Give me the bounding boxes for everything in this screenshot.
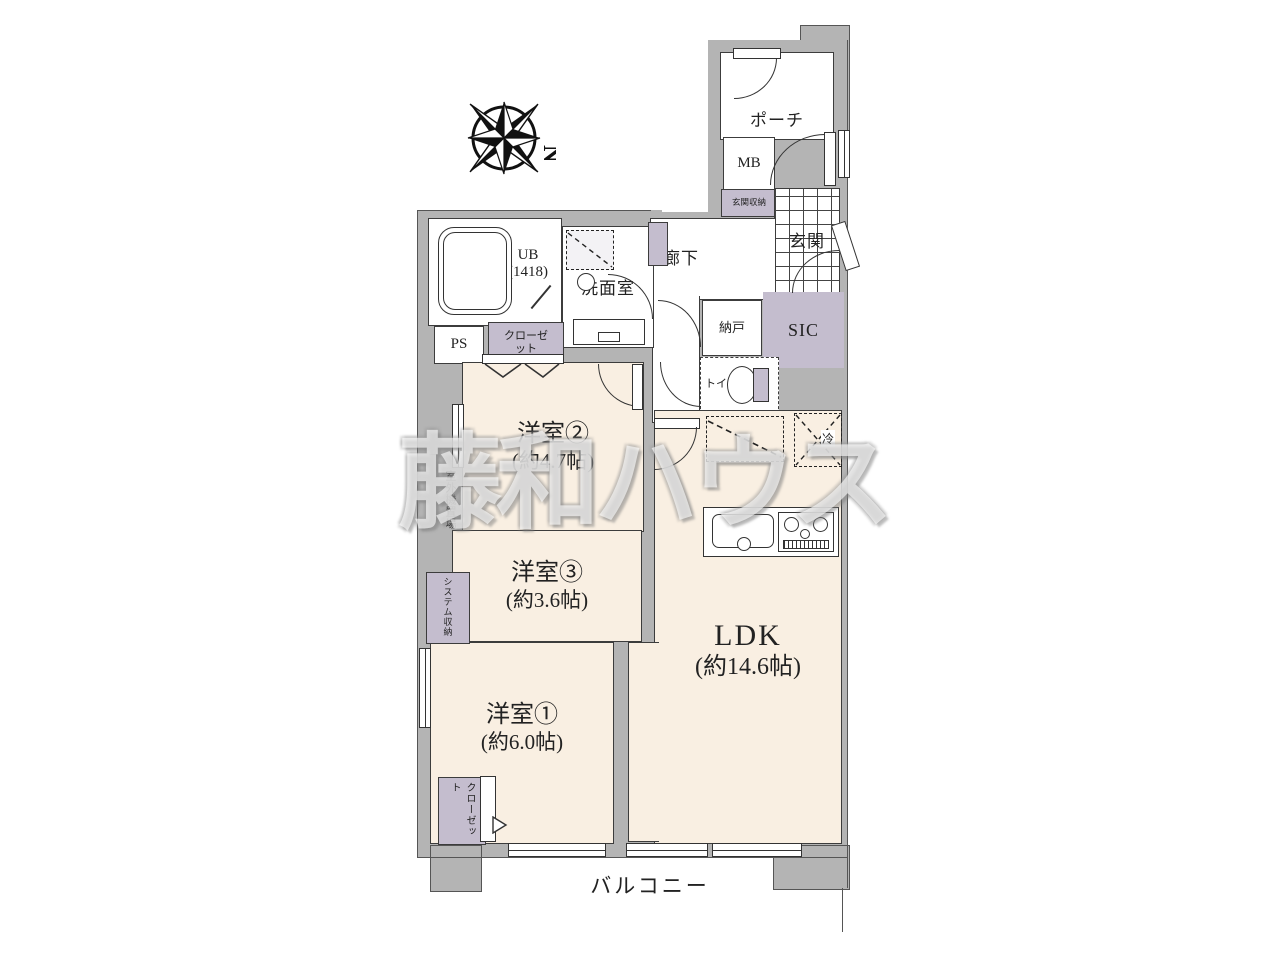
kitchen-sink xyxy=(712,514,774,548)
ldk-label: LDK (約14.6帖) xyxy=(655,619,841,681)
refrigerator-label: 冷 xyxy=(821,430,835,447)
bathtub-inner xyxy=(443,232,507,310)
outdoor-unit-space-label: 室外機置場 xyxy=(442,470,458,570)
entrance-storage-label: 玄関収納 xyxy=(732,198,766,208)
balcony-window-3 xyxy=(712,843,802,857)
balcony-window-2 xyxy=(626,843,708,857)
balcony-window-1 xyxy=(508,843,606,857)
room-storage: 納戸 xyxy=(702,300,762,356)
washer-space xyxy=(566,230,614,270)
western-1-door-arrow-icon xyxy=(492,816,508,834)
room-ldk-extension xyxy=(628,642,659,842)
western-room-2-label: 洋室② (約4.7帖) xyxy=(512,421,594,473)
toilet-tank xyxy=(753,368,769,402)
vanity xyxy=(573,319,645,345)
system-storage-label: システム収納 xyxy=(442,577,455,639)
burner-center xyxy=(800,529,810,539)
corridor-label: 廊下 xyxy=(663,249,699,269)
compass-north-label: N xyxy=(538,145,556,163)
compass-star-icon: N xyxy=(452,86,556,190)
room-entrance-storage: 玄関収納 xyxy=(721,189,777,217)
kitchen-counter xyxy=(703,507,839,557)
room-closet-lower: クローゼット xyxy=(438,777,486,845)
outline-bottom xyxy=(417,857,848,858)
counter-diagonal xyxy=(707,417,783,461)
room-system-storage: システム収納 xyxy=(426,572,470,644)
room-unit-bath: UB (1418) xyxy=(428,218,562,326)
outline-left xyxy=(417,210,418,858)
room-pipe-space: PS xyxy=(434,326,484,364)
bathtub xyxy=(438,227,512,315)
room-toilet: トイレ xyxy=(700,357,779,414)
sic-label: SIC xyxy=(788,320,819,341)
sink-faucet xyxy=(737,537,751,551)
outline-top-mid xyxy=(417,210,651,211)
western-1-window xyxy=(419,648,431,728)
floor-plan: N ポーチ MB 玄関収納 玄関 廊下 UB (1418) xyxy=(0,0,1280,961)
room-corridor: 廊下 xyxy=(650,218,776,300)
western-room-1-label: 洋室① (約6.0帖) xyxy=(481,702,563,754)
burner-right xyxy=(813,517,828,532)
kitchen-counter-space xyxy=(706,416,784,462)
front-door-leaf xyxy=(824,132,836,186)
room-meter-box: MB xyxy=(723,137,775,191)
grill xyxy=(783,540,829,549)
western-room-3-label: 洋室③ (約3.6帖) xyxy=(506,560,588,612)
entrance-label: 玄関 xyxy=(789,232,825,252)
room-western-3: 洋室③ (約3.6帖) xyxy=(452,530,642,642)
ps-label: PS xyxy=(451,336,468,353)
wall-balcony-left-stub xyxy=(430,845,482,892)
closet-upper-label: クローゼット xyxy=(502,330,550,355)
western-2-door-leaf xyxy=(632,364,643,410)
storage-room-label: 納戸 xyxy=(719,321,745,336)
balcony-label: バルコニー xyxy=(560,870,740,900)
refrigerator-space: 冷 xyxy=(794,413,842,467)
porch-label: ポーチ xyxy=(750,111,804,131)
closet-lower-label: クローゼット xyxy=(447,782,477,840)
room-ldk: LDK (約14.6帖) xyxy=(654,410,842,844)
stove xyxy=(778,512,834,552)
washer-diagonal xyxy=(567,231,613,269)
washer-pan-drain xyxy=(577,273,595,291)
vanity-bowl xyxy=(598,332,620,342)
mb-label: MB xyxy=(737,155,760,172)
linen-shelf xyxy=(648,222,668,266)
burner-left xyxy=(784,517,799,532)
western-2-window xyxy=(452,404,464,468)
entrance-side-window xyxy=(838,130,850,178)
balcony-fence-line xyxy=(842,888,843,932)
closet-fold-door-icon xyxy=(482,363,562,379)
compass-rose: N xyxy=(452,86,556,190)
